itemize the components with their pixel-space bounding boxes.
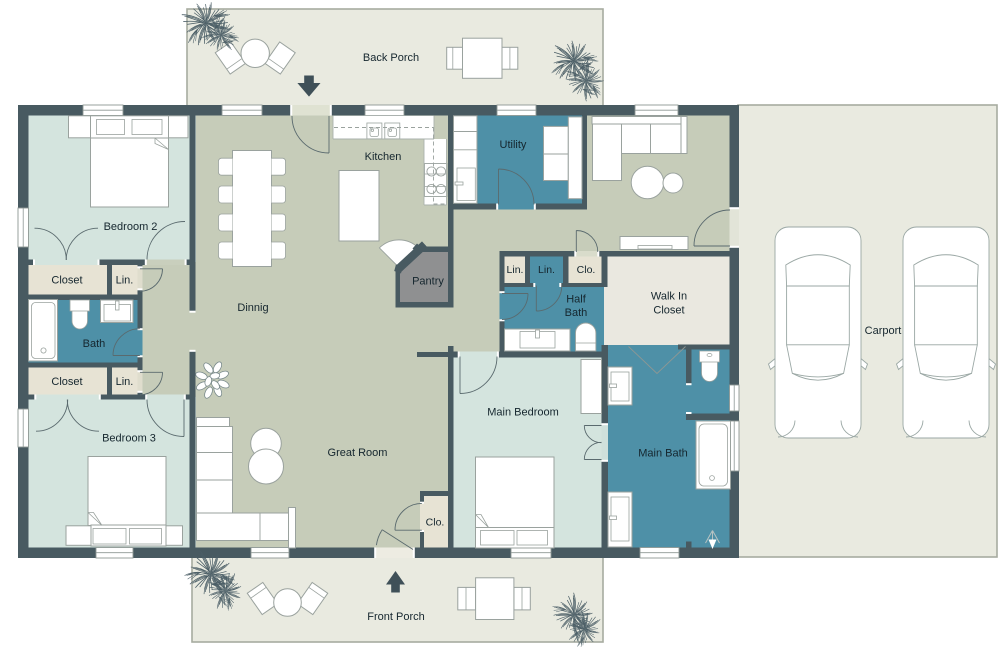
svg-text:Closet: Closet: [51, 275, 82, 287]
svg-text:Clo.: Clo.: [426, 517, 445, 529]
svg-text:Walk In: Walk In: [651, 291, 687, 303]
svg-text:Carport: Carport: [865, 325, 902, 337]
svg-text:Lin.: Lin.: [538, 264, 555, 276]
svg-text:Main Bath: Main Bath: [638, 448, 688, 460]
svg-text:Bath: Bath: [565, 307, 588, 319]
svg-text:Utility: Utility: [500, 139, 527, 151]
svg-text:Bedroom 2: Bedroom 2: [104, 221, 158, 233]
svg-text:Front Porch: Front Porch: [367, 611, 424, 623]
svg-text:Back Porch: Back Porch: [363, 52, 419, 64]
svg-text:Lin.: Lin.: [507, 264, 524, 276]
svg-text:Dinnig: Dinnig: [237, 302, 268, 314]
svg-text:Lin.: Lin.: [116, 376, 134, 388]
svg-text:Bedroom 3: Bedroom 3: [102, 433, 156, 445]
svg-text:Half: Half: [566, 294, 587, 306]
svg-text:Great Room: Great Room: [328, 447, 388, 459]
svg-text:Main Bedroom: Main Bedroom: [487, 407, 559, 419]
svg-text:Clo.: Clo.: [577, 264, 596, 276]
svg-text:Pantry: Pantry: [412, 276, 444, 288]
svg-text:Bath: Bath: [83, 338, 106, 350]
svg-text:Closet: Closet: [653, 305, 684, 317]
svg-text:Kitchen: Kitchen: [365, 151, 402, 163]
svg-text:Closet: Closet: [51, 376, 82, 388]
svg-text:Lin.: Lin.: [116, 275, 134, 287]
